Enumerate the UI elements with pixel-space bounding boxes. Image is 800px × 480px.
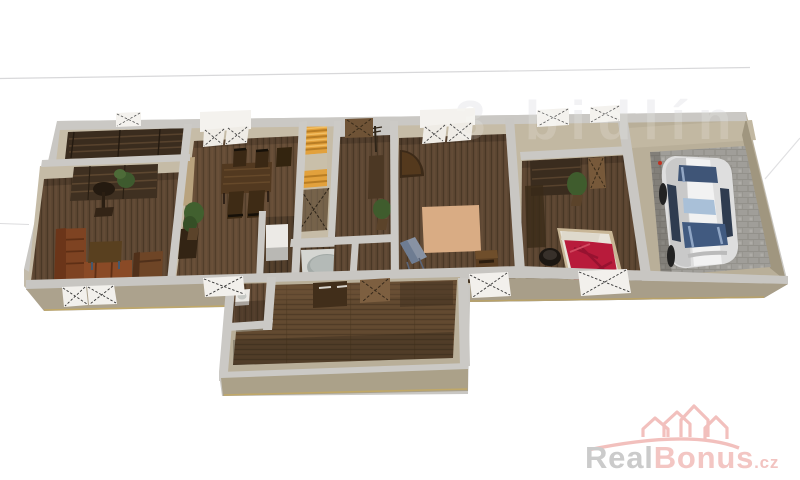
svg-text:3 bidlín: 3 bidlín bbox=[455, 89, 744, 151]
svg-text:RealBonus.cz: RealBonus.cz bbox=[585, 440, 779, 475]
